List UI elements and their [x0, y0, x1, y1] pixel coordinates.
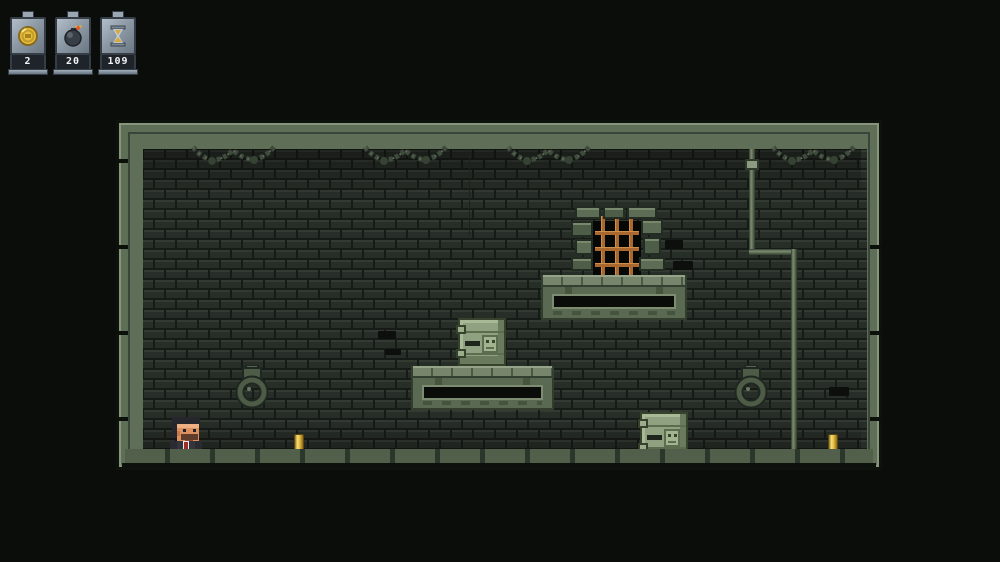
wall-hole [829, 387, 849, 396]
crate-latch [638, 419, 648, 428]
crate-latch [456, 349, 466, 358]
jail-bar [615, 216, 619, 276]
wall-ring-right [731, 365, 771, 409]
upper-platform [541, 275, 687, 320]
platform-slot [552, 294, 676, 309]
frame-joint [116, 417, 128, 421]
wall-hole [665, 240, 683, 249]
ceiling-chain-icon [506, 143, 591, 175]
platform-ledge [541, 275, 687, 287]
hourglass-icon [107, 25, 129, 47]
floor-shadow [122, 463, 876, 467]
hud-counter-bombs: 20 [55, 11, 91, 75]
hud-counter-coins: 2 [10, 11, 46, 75]
platform-slot [422, 385, 543, 400]
crate-latch [456, 325, 466, 334]
floor-ledge [125, 449, 873, 463]
wall-hole [378, 331, 396, 339]
window-stone [571, 221, 593, 237]
frame-joint [116, 245, 128, 249]
crate-label [482, 335, 498, 353]
jail-bar [595, 247, 639, 251]
frame-joint [870, 245, 882, 249]
wall-pipe-vertical-lower [791, 249, 797, 455]
wall-hole [385, 349, 401, 355]
window-stone [627, 206, 657, 219]
middle-platform [411, 366, 554, 410]
crate-slot [465, 341, 480, 346]
bomb-count: 20 [55, 55, 91, 69]
frame-joint [116, 159, 128, 163]
ceiling-chain-icon [363, 143, 448, 175]
platform-body [411, 378, 554, 410]
window-stone [641, 219, 663, 235]
window-stone [571, 257, 593, 271]
hud-panel-base [98, 69, 138, 75]
hud-counter-timer: 109 [100, 11, 136, 75]
jail-bar [595, 263, 639, 267]
hud-panel-base [8, 69, 48, 75]
bomb-icon [62, 25, 84, 47]
ceiling-chain-icon [191, 143, 276, 175]
crate-slot [647, 435, 662, 440]
jail-bar [629, 216, 633, 276]
timer-count: 109 [100, 55, 136, 69]
frame-joint [116, 331, 128, 335]
coin-icon [17, 25, 39, 47]
window-stone [639, 257, 665, 271]
ceiling-chain-icon [771, 143, 856, 175]
hanging-chain [469, 149, 474, 235]
pipe-coupling [745, 159, 759, 170]
wall-hole [673, 261, 693, 270]
platform-ledge [411, 366, 554, 378]
frame-joint [870, 417, 882, 421]
game-viewport[interactable]: 2 20 [0, 0, 1000, 562]
level-room [116, 120, 882, 470]
frame-joint [870, 331, 882, 335]
hud-panel-base [53, 69, 93, 75]
platform-body [541, 287, 687, 320]
window-stone [643, 237, 661, 255]
wall-ring-left [232, 365, 272, 409]
hud: 2 20 [10, 11, 136, 75]
jail-bar [601, 216, 605, 276]
window-stone [603, 206, 625, 219]
window-stone [575, 239, 593, 255]
crate-label [664, 429, 680, 447]
coin-count: 2 [10, 55, 46, 69]
wall-pipe-elbow [749, 249, 797, 255]
crate-on-platform [458, 318, 506, 366]
jail-bar [595, 231, 639, 235]
window-stone [575, 206, 601, 219]
